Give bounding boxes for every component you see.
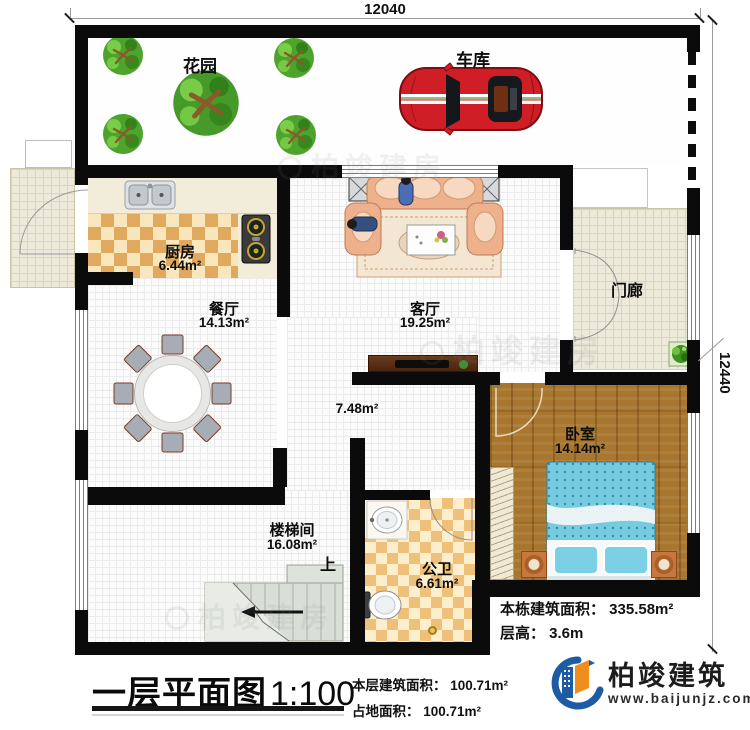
bathroom-door [428, 496, 476, 544]
kitchen-counter [88, 178, 277, 214]
sofa-set-icon [343, 173, 505, 279]
wall [687, 533, 700, 597]
window [75, 310, 88, 430]
dining-table-icon [110, 331, 235, 456]
wall [475, 383, 490, 580]
hallway-area: 7.48m² [336, 401, 379, 416]
wall [545, 372, 700, 385]
tv-icon [395, 360, 449, 368]
title-underline-thin [92, 714, 344, 716]
living-area: 19.25m² [400, 315, 450, 330]
kitchen-terrace-door [8, 186, 90, 258]
wall [75, 25, 88, 185]
floor-area-note: 本层建筑面积： 100.71m² [352, 674, 508, 694]
garage-label: 车库 [456, 46, 490, 71]
nightstand [521, 551, 547, 578]
wall [78, 487, 285, 505]
wall [475, 580, 700, 597]
title-underline [92, 706, 344, 711]
wall [75, 430, 88, 480]
hallway-floor [287, 317, 478, 490]
brand-logo: 柏竣建筑 www.baijunjz.com [548, 650, 748, 722]
window [342, 165, 498, 178]
stairwell-area: 16.08m² [267, 537, 317, 552]
floor-drain-icon [428, 626, 437, 635]
dimension-ext [700, 8, 701, 18]
floor-plan: 12040 12440 [0, 0, 750, 730]
kitchen-area: 6.44m² [159, 258, 202, 273]
wall [350, 438, 365, 642]
land-area-note: 占地面积： 100.71m² [352, 700, 481, 720]
terrace-canopy [25, 140, 72, 168]
tree-icon [101, 112, 145, 156]
wardrobe [490, 467, 514, 580]
wall [498, 165, 560, 178]
garage-step [568, 168, 648, 208]
bedroom-door [492, 386, 546, 440]
porch-label: 门廊 [611, 277, 643, 301]
wall [560, 340, 573, 372]
wall [687, 188, 700, 235]
wall [472, 580, 490, 642]
dimension-right: 12440 [716, 352, 733, 394]
brand-name: 柏竣建筑 [608, 654, 728, 693]
window [687, 235, 700, 340]
dimension-line-top [70, 18, 700, 19]
wall [355, 490, 430, 500]
window [687, 413, 700, 533]
bed-icon [545, 460, 657, 582]
wall [75, 642, 490, 655]
dimension-line-right [712, 20, 713, 652]
tree-icon [274, 113, 318, 157]
wall [75, 253, 88, 310]
dining-area: 14.13m² [199, 315, 249, 330]
bathroom-sink-icon [366, 500, 408, 540]
floor-height-note: 层高： 3.6m [500, 622, 583, 643]
bedroom-area: 14.14m² [555, 441, 605, 456]
wall [273, 448, 287, 487]
brand-logo-icon [548, 652, 604, 714]
kitchen-sink-icon [124, 180, 176, 210]
wall [277, 165, 290, 317]
car-icon [396, 62, 546, 136]
wall [687, 25, 700, 52]
tv-cabinet [368, 355, 478, 372]
plant-icon [459, 360, 468, 369]
garden-label: 花园 [183, 52, 217, 77]
brand-website: www.baijunjz.com [608, 691, 750, 706]
garage-door-dashed [688, 52, 696, 188]
big-tree-icon [170, 67, 242, 139]
wall [75, 25, 700, 38]
tree-icon [101, 33, 145, 77]
window [75, 480, 88, 610]
dimension-top: 12040 [364, 1, 406, 18]
wall [88, 165, 342, 178]
nightstand [651, 551, 677, 578]
stairs-icon [203, 563, 345, 643]
wall [560, 165, 573, 250]
stairs-up-label: 上 [320, 551, 336, 575]
tree-icon [272, 36, 316, 80]
wall [88, 272, 133, 285]
stove-icon [241, 214, 271, 264]
dimension-ext [70, 8, 71, 18]
bathroom-area: 6.61m² [416, 576, 459, 591]
building-area-note: 本栋建筑面积： 335.58m² [500, 598, 673, 619]
